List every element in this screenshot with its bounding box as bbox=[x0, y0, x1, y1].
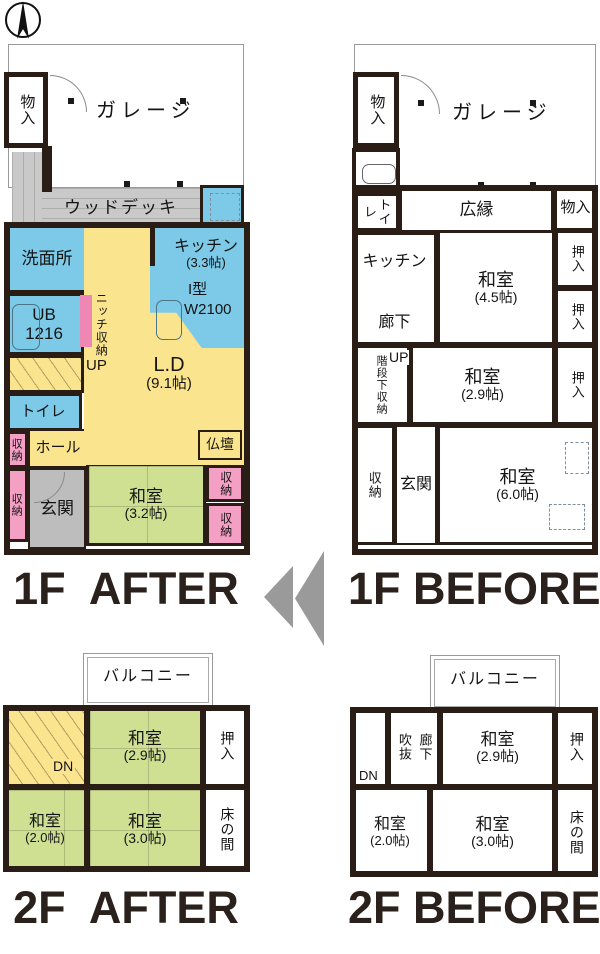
floorplan-sheet: ガレージ 物入 ウッドデッキ UP L.D (9.1帖) キッチン (3.3帖 bbox=[0, 0, 600, 954]
room-closet-3: 押入 bbox=[555, 345, 598, 425]
room-label-closet3: 押入 bbox=[569, 371, 584, 399]
room-label-kitchen: キッチン bbox=[362, 253, 426, 271]
room-label-closet1: 押入 bbox=[569, 245, 584, 273]
room-closet: 押入 bbox=[203, 705, 250, 787]
room-label-corridor: 廊下 bbox=[417, 733, 432, 761]
room-label-kitchen-width: W2100 bbox=[184, 302, 232, 319]
room-label-tatami60-size: (6.0帖) bbox=[496, 487, 539, 503]
room-label-tatami29-size: (2.9帖) bbox=[124, 748, 167, 764]
room-closet-1: 押入 bbox=[555, 230, 598, 288]
room-storage-right: 物入 bbox=[553, 185, 598, 232]
room-label-closet: 押入 bbox=[568, 732, 584, 762]
caption-1f-before: 1F BEFORE bbox=[348, 563, 600, 615]
room-label-void: 吹抜 bbox=[396, 733, 411, 761]
room-tatami-20: 和室 (2.0帖) bbox=[350, 787, 430, 877]
room-label-tokonoma: 床の間 bbox=[219, 807, 235, 852]
room-label-entry: 玄関 bbox=[40, 499, 74, 518]
plan-2f-after: バルコニー DN 和室 (2.9帖) 押入 和室 (2.0帖) 和室 (3.0帖… bbox=[3, 653, 250, 878]
bathtub-icon bbox=[12, 304, 40, 350]
room-label-toilet: トイレ bbox=[361, 196, 390, 228]
room-tokonoma: 床の間 bbox=[555, 787, 597, 877]
room-label-storage-top: 物入 bbox=[18, 94, 35, 126]
room-label-tatami45-size: (4.5帖) bbox=[475, 290, 518, 306]
room-label-tatami20: 和室 bbox=[374, 816, 406, 834]
room-label-tatami29: 和室 bbox=[128, 729, 162, 748]
room-tatami: 和室 (3.2帖) bbox=[86, 463, 206, 546]
room-label-storage: 収納 bbox=[366, 471, 381, 499]
room-label-tatami: 和室 bbox=[129, 487, 163, 506]
room-tatami-20: 和室 (2.0帖) bbox=[3, 787, 87, 872]
post-marker bbox=[68, 98, 74, 104]
wall-segment bbox=[150, 222, 155, 266]
stairs-up bbox=[4, 355, 84, 393]
room-label-tatami20-size: (2.0帖) bbox=[25, 831, 65, 846]
room-tatami-60: 和室 (6.0帖) bbox=[437, 425, 598, 545]
room-toilet: トイレ bbox=[4, 393, 82, 431]
post-marker bbox=[478, 182, 484, 188]
room-storage-r2: 収納 bbox=[206, 503, 244, 546]
bathtub-icon bbox=[362, 164, 396, 184]
room-balcony: バルコニー bbox=[430, 655, 560, 711]
room-label-dn: DN bbox=[51, 759, 75, 774]
room-label-veranda: 広縁 bbox=[460, 200, 494, 219]
room-tatami-29: 和室 (2.9帖) bbox=[87, 705, 203, 787]
room-label-tatami30-size: (3.0帖) bbox=[471, 834, 514, 850]
room-kitchen-corridor: キッチン 廊下 bbox=[352, 232, 437, 345]
room-label-tatami29: 和室 bbox=[465, 367, 501, 387]
furniture-outline bbox=[549, 504, 585, 530]
post-marker bbox=[177, 181, 183, 187]
before-to-after-arrow-icon bbox=[264, 566, 293, 628]
room-tatami-30: 和室 (3.0帖) bbox=[430, 787, 555, 877]
post-marker bbox=[180, 98, 186, 104]
room-label-storage-right: 物入 bbox=[560, 200, 590, 217]
room-label-tatami45: 和室 bbox=[478, 270, 514, 290]
room-storage-top: 物入 bbox=[4, 72, 48, 148]
room-label-balcony: バルコニー bbox=[450, 671, 540, 689]
post-marker bbox=[530, 182, 536, 188]
room-label-tatami30: 和室 bbox=[476, 815, 510, 834]
plan-1f-after: ガレージ 物入 ウッドデッキ UP L.D (9.1帖) キッチン (3.3帖 bbox=[4, 42, 250, 555]
room-label-closet2: 押入 bbox=[569, 303, 584, 331]
room-label-hall: ホール bbox=[35, 440, 80, 457]
room-label-tatami-size: (3.2帖) bbox=[125, 506, 168, 522]
room-storage-r1: 収納 bbox=[206, 465, 244, 502]
post-marker bbox=[418, 100, 424, 106]
room-label-tatami30: 和室 bbox=[128, 812, 162, 831]
room-label-niche: ニッチ収納 bbox=[94, 292, 107, 366]
room-label-up: UP bbox=[388, 350, 409, 365]
room-label-tatami60: 和室 bbox=[500, 467, 536, 487]
room-tatami-30: 和室 (3.0帖) bbox=[87, 787, 203, 872]
kitchen-sink-icon bbox=[156, 300, 182, 340]
before-to-after-arrow-icon bbox=[295, 551, 324, 646]
room-label-altar: 仏壇 bbox=[206, 437, 234, 453]
north-arrow-icon bbox=[5, 2, 41, 38]
room-label-storage-top: 物入 bbox=[368, 94, 385, 126]
room-label-dn: DN bbox=[358, 769, 379, 783]
caption-2f-before: 2F BEFORE bbox=[348, 882, 600, 934]
room-bath: UB 1216 bbox=[4, 293, 84, 355]
room-label-stair-storage: 階段下収納 bbox=[375, 355, 387, 415]
room-washroom: 洗面所 bbox=[4, 225, 90, 293]
room-label-tatami29-size: (2.9帖) bbox=[461, 387, 504, 403]
post-marker bbox=[124, 181, 130, 187]
room-hall-storage: 収納 bbox=[4, 431, 28, 468]
room-label-garage: ガレージ bbox=[452, 102, 552, 124]
room-closet: 押入 bbox=[555, 707, 597, 787]
room-label-corridor: 廊下 bbox=[378, 314, 410, 332]
room-storage: 収納 bbox=[352, 425, 395, 545]
room-label-kitchen: キッチン (3.3帖) bbox=[164, 238, 248, 270]
room-tatami-29: 和室 (2.9帖) bbox=[440, 707, 555, 787]
room-tatami-45: 和室 (4.5帖) bbox=[437, 230, 555, 345]
room-kitchen-top bbox=[200, 185, 244, 225]
room-closet-2: 押入 bbox=[555, 288, 598, 345]
room-label-kitchen-type: I型 bbox=[188, 282, 207, 299]
north-needle-icon bbox=[17, 1, 29, 39]
room-altar: 仏壇 bbox=[198, 430, 242, 460]
room-label-balcony: バルコニー bbox=[103, 668, 193, 686]
room-tatami-29: 和室 (2.9帖) bbox=[410, 345, 555, 425]
room-label-living: L.D (9.1帖) bbox=[124, 354, 214, 393]
room-label-tatami20-size: (2.0帖) bbox=[370, 834, 410, 849]
room-label-entry-storage: 収納 bbox=[10, 493, 22, 517]
room-balcony: バルコニー bbox=[83, 653, 213, 707]
stairs-down bbox=[3, 705, 87, 787]
room-hall: ホール bbox=[28, 429, 88, 468]
refrigerator-outline bbox=[210, 193, 240, 221]
room-toilet: トイレ bbox=[352, 192, 400, 232]
furniture-outline bbox=[565, 442, 589, 474]
niche-storage-strip bbox=[80, 295, 92, 347]
caption-2f-after: 2F AFTER bbox=[0, 882, 252, 934]
room-storage-top: 物入 bbox=[353, 72, 399, 148]
room-label-closet: 押入 bbox=[219, 731, 235, 761]
room-label-wood-deck: ウッドデッキ bbox=[64, 198, 178, 217]
wood-deck-side bbox=[12, 152, 42, 228]
room-label-storage-r2: 収納 bbox=[218, 512, 231, 538]
room-label-storage-r1: 収納 bbox=[218, 471, 231, 497]
room-label-up: UP bbox=[86, 358, 107, 375]
room-entry-storage: 収納 bbox=[4, 468, 28, 542]
room-bathroom bbox=[352, 148, 400, 192]
caption-1f-after: 1F AFTER bbox=[0, 563, 252, 615]
room-entry: 玄関 bbox=[395, 425, 437, 545]
room-label-toilet: トイレ bbox=[20, 404, 65, 421]
room-label-washroom: 洗面所 bbox=[22, 249, 73, 268]
post-marker bbox=[530, 100, 536, 106]
room-label-entry: 玄関 bbox=[400, 476, 432, 494]
room-label-hall-storage: 収納 bbox=[10, 438, 22, 462]
room-void-corridor: 吹抜 廊下 bbox=[388, 707, 440, 787]
room-label-tatami29: 和室 bbox=[481, 730, 515, 749]
room-label-tatami29-size: (2.9帖) bbox=[476, 749, 519, 765]
room-label-tatami30-size: (3.0帖) bbox=[124, 831, 167, 847]
room-label-tatami20: 和室 bbox=[29, 813, 61, 831]
room-veranda: 広縁 bbox=[400, 188, 553, 232]
plan-1f-before: ガレージ 物入 トイレ 広縁 物入 キッチン 廊下 和室 (4.5帖) bbox=[352, 42, 598, 555]
wall-segment bbox=[42, 146, 52, 192]
room-label-tokonoma: 床の間 bbox=[568, 810, 584, 855]
room-tokonoma: 床の間 bbox=[203, 787, 250, 872]
plan-2f-before: バルコニー DN 吹抜 廊下 和室 (2.9帖) 押入 和室 (2.0帖) 和室… bbox=[350, 655, 598, 877]
